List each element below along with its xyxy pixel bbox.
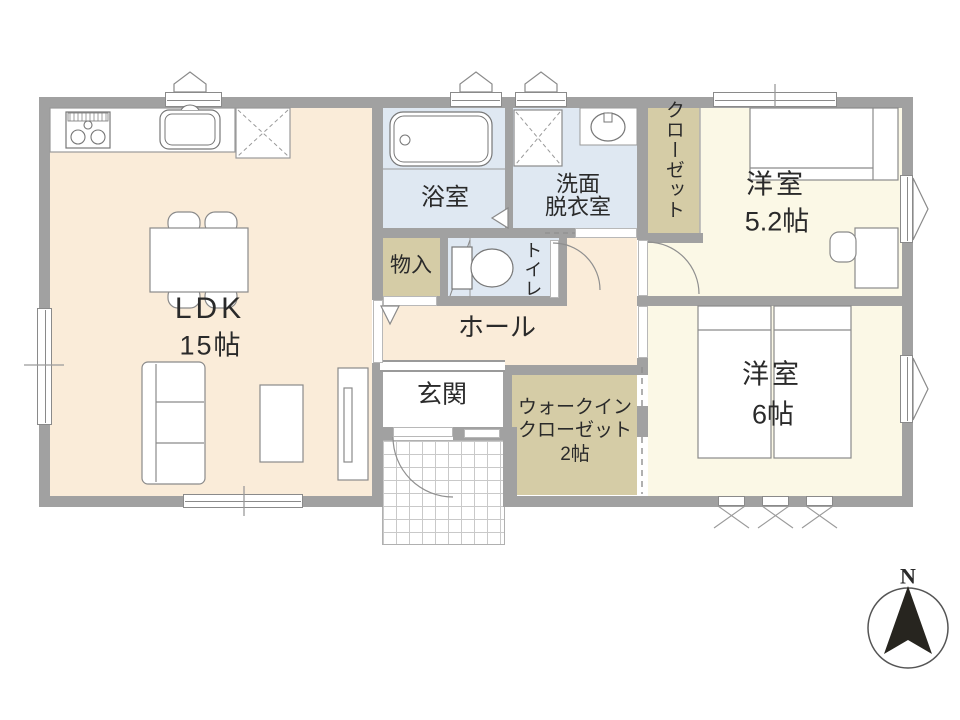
label-washroom-1: 洗面: [556, 171, 600, 196]
refrigerator-space-icon: [236, 108, 290, 158]
bathtub-icon: [383, 112, 505, 169]
storage-door-icon: [381, 306, 399, 324]
bedroom52-door-arc: [648, 242, 699, 294]
door-swing-arcs: [393, 242, 699, 497]
bath-door-icon: [492, 208, 508, 228]
entry-door-arc: [393, 437, 453, 497]
tv-board-icon: [338, 368, 368, 480]
label-wic-3: 2帖: [560, 444, 590, 466]
label-north: N: [900, 563, 916, 588]
north-arrow-icon: [868, 586, 948, 668]
label-wic-2: クローゼット: [518, 420, 632, 442]
label-bedroom6-size: 6帖: [752, 399, 794, 430]
label-toilet: トイレ: [522, 241, 543, 298]
plan-symbols: [0, 0, 960, 720]
label-washroom-2: 脱衣室: [545, 194, 611, 219]
label-storage: 物入: [390, 254, 432, 278]
floor-plan: LDK 15帖 浴室 洗面 脱衣室 クローゼット 洋室 5.2帖 物入 トイレ …: [0, 0, 960, 720]
label-ldk: LDK: [175, 292, 245, 327]
foundation-vent-icon: [714, 506, 837, 528]
label-bath: 浴室: [421, 184, 469, 212]
casement-window-icon: [913, 178, 928, 420]
kitchen-counter: [50, 105, 290, 158]
desk-icon: [830, 228, 898, 288]
kitchen-sink-icon: [160, 105, 220, 149]
vent-hood-icon: [174, 72, 557, 92]
coffee-table-icon: [260, 385, 303, 462]
sofa-icon: [142, 362, 205, 484]
label-bedroom52-size: 5.2帖: [745, 206, 810, 237]
washer-pan-icon: [514, 110, 562, 166]
toilet-icon: [450, 238, 513, 298]
label-closet: クローゼット: [662, 100, 684, 220]
label-ldk-size: 15帖: [179, 330, 242, 361]
label-bedroom6: 洋室: [742, 359, 802, 390]
wash-basin-icon: [580, 108, 637, 145]
label-wic-1: ウォークイン: [518, 397, 632, 419]
label-bedroom52: 洋室: [746, 169, 806, 200]
stove-icon: [66, 112, 110, 148]
washroom-door-arc: [553, 243, 600, 290]
label-hall: ホール: [458, 313, 536, 343]
label-entrance: 玄関: [417, 381, 467, 410]
